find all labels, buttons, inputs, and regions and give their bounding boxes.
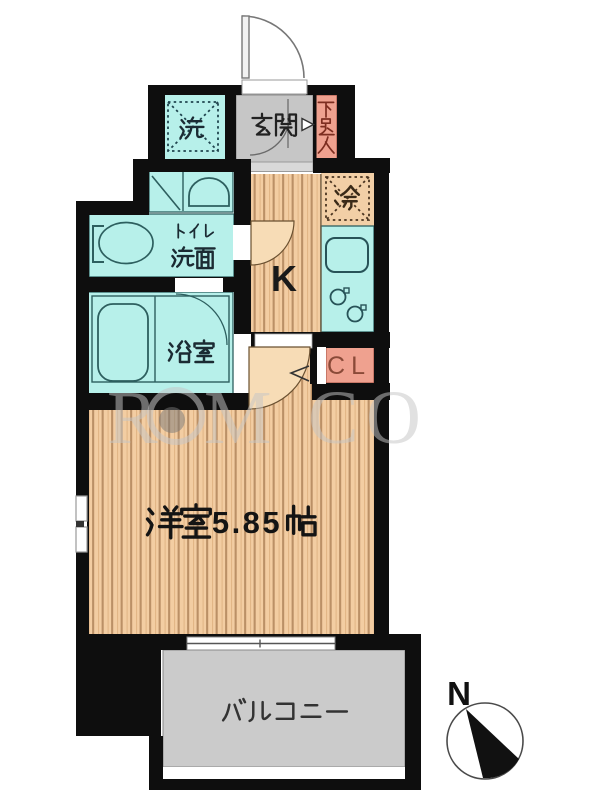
svg-text:N: N [447,675,471,712]
svg-text:C: C [308,376,359,460]
svg-text:M: M [204,376,272,460]
svg-text:5.85: 5.85 [212,505,282,540]
svg-text:K: K [271,258,297,299]
svg-text:O: O [366,376,421,460]
